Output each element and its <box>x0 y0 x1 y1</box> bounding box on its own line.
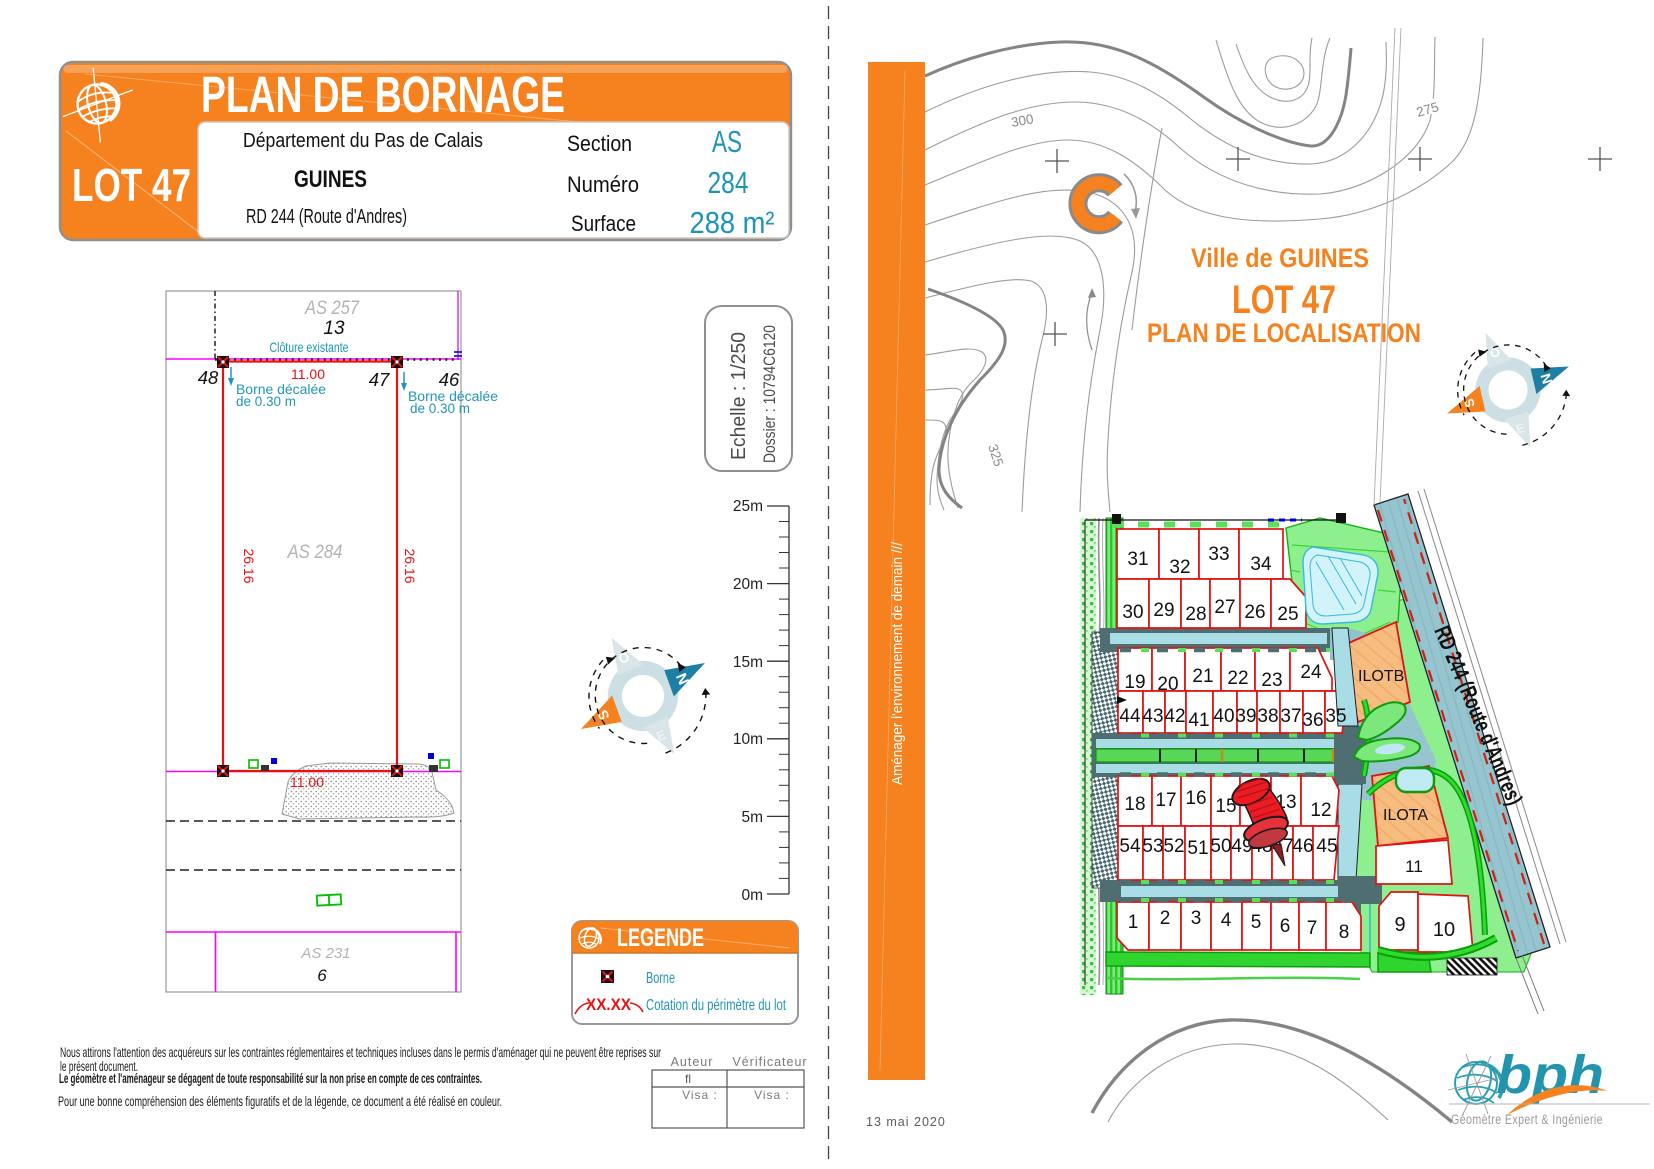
svg-text:54: 54 <box>1119 836 1141 857</box>
svg-text:16: 16 <box>1185 788 1206 809</box>
svg-text:26.16: 26.16 <box>241 548 257 583</box>
svg-text:46: 46 <box>1292 836 1313 857</box>
svg-text:45: 45 <box>1316 836 1337 857</box>
svg-text:Surface: Surface <box>571 211 636 236</box>
svg-text:fl: fl <box>685 1072 691 1086</box>
svg-text:2: 2 <box>1160 908 1171 929</box>
svg-text:46: 46 <box>439 369 460 390</box>
svg-text:3: 3 <box>1191 908 1202 929</box>
svg-text:23: 23 <box>1261 670 1282 691</box>
svg-text:40: 40 <box>1213 706 1234 727</box>
svg-text:24: 24 <box>1300 662 1322 683</box>
svg-text:5: 5 <box>1251 912 1262 933</box>
svg-text:9: 9 <box>1394 914 1405 936</box>
svg-text:21: 21 <box>1192 666 1213 687</box>
svg-text:26: 26 <box>1244 602 1265 623</box>
svg-text:Echelle : 1/250: Echelle : 1/250 <box>728 332 750 460</box>
svg-text:5m: 5m <box>741 809 763 826</box>
svg-text:15m: 15m <box>733 654 763 671</box>
svg-text:ILOTA: ILOTA <box>1383 807 1428 824</box>
svg-text:20m: 20m <box>733 576 763 593</box>
svg-text:52: 52 <box>1163 836 1184 857</box>
svg-text:PLAN DE BORNAGE: PLAN DE BORNAGE <box>201 66 565 123</box>
svg-text:10m: 10m <box>733 731 763 748</box>
svg-text:Ville de GUINES: Ville de GUINES <box>1191 243 1369 273</box>
svg-text:25: 25 <box>1277 604 1298 625</box>
svg-text:Géomètre Expert & Ingénierie: Géomètre Expert & Ingénierie <box>1451 1112 1603 1127</box>
svg-text:37: 37 <box>1280 706 1301 727</box>
svg-text:de 0.30 m: de 0.30 m <box>236 394 296 409</box>
svg-text:284: 284 <box>708 165 749 200</box>
svg-text:27: 27 <box>1214 597 1235 618</box>
svg-text:39: 39 <box>1235 706 1256 727</box>
svg-text:Section: Section <box>567 131 632 156</box>
svg-text:PLAN DE LOCALISATION: PLAN DE LOCALISATION <box>1147 318 1421 348</box>
svg-text:LOT 47: LOT 47 <box>1232 278 1336 322</box>
svg-text:AS 284: AS 284 <box>287 542 343 563</box>
svg-text:20: 20 <box>1157 674 1178 695</box>
svg-text:32: 32 <box>1169 557 1190 578</box>
svg-text:43: 43 <box>1142 706 1163 727</box>
svg-text:11.00: 11.00 <box>290 774 324 790</box>
svg-text:18: 18 <box>1124 794 1145 815</box>
svg-text:Numéro: Numéro <box>567 172 639 197</box>
svg-text:31: 31 <box>1127 549 1148 570</box>
svg-text:47: 47 <box>369 369 390 390</box>
svg-text:AS 231: AS 231 <box>300 945 350 962</box>
svg-text:50: 50 <box>1210 836 1231 857</box>
svg-text:28: 28 <box>1185 604 1206 625</box>
svg-text:6: 6 <box>1280 916 1291 937</box>
svg-text:Auteur: Auteur <box>671 1055 714 1069</box>
svg-text:44: 44 <box>1119 706 1141 727</box>
svg-text:48: 48 <box>198 367 219 388</box>
svg-text:8: 8 <box>1339 922 1350 943</box>
svg-text:Vérificateur: Vérificateur <box>732 1055 807 1069</box>
svg-text:Dossier : 10794C6120: Dossier : 10794C6120 <box>761 325 779 463</box>
svg-text:Visa :: Visa : <box>754 1088 790 1102</box>
svg-text:13 mai 2020: 13 mai 2020 <box>866 1115 946 1129</box>
svg-text:7: 7 <box>1307 918 1318 939</box>
svg-text:Visa :: Visa : <box>682 1088 718 1102</box>
svg-text:41: 41 <box>1188 710 1209 731</box>
svg-text:13: 13 <box>323 318 345 339</box>
svg-text:34: 34 <box>1250 554 1272 575</box>
svg-text:51: 51 <box>1187 838 1208 859</box>
svg-text:38: 38 <box>1257 706 1278 727</box>
svg-text:10: 10 <box>1433 919 1455 941</box>
svg-text:11.00: 11.00 <box>291 366 325 382</box>
svg-text:Département du Pas de Calais: Département du Pas de Calais <box>243 130 483 152</box>
svg-text:35: 35 <box>1325 706 1346 727</box>
svg-text:AS: AS <box>712 124 742 159</box>
svg-text:GUINES: GUINES <box>294 166 367 193</box>
svg-text:22: 22 <box>1227 668 1248 689</box>
svg-text:4: 4 <box>1221 910 1232 931</box>
svg-text:17: 17 <box>1155 790 1176 811</box>
svg-text:Aménager l'environnement de de: Aménager l'environnement de demain /// <box>890 541 906 785</box>
svg-text:Le géomètre et l'aménageur se: Le géomètre et l'aménageur se dégagent d… <box>59 1070 482 1086</box>
svg-text:30: 30 <box>1122 602 1143 623</box>
svg-text:0m: 0m <box>741 887 763 904</box>
svg-text:LEGENDE: LEGENDE <box>617 924 704 952</box>
svg-text:Cotation du périmètre du lot: Cotation du périmètre du lot <box>646 997 786 1014</box>
svg-text:11: 11 <box>1405 857 1423 876</box>
svg-text:29: 29 <box>1153 600 1174 621</box>
svg-text:26.16: 26.16 <box>402 548 418 583</box>
svg-text:1: 1 <box>1128 912 1139 933</box>
svg-text:53: 53 <box>1142 836 1163 857</box>
svg-text:33: 33 <box>1208 544 1229 565</box>
svg-text:36: 36 <box>1302 710 1323 731</box>
svg-text:6: 6 <box>317 966 327 985</box>
svg-text:Nous attirons l'attention des: Nous attirons l'attention des acquéreurs… <box>60 1044 661 1060</box>
svg-text:42: 42 <box>1164 706 1185 727</box>
svg-text:Clôture existante: Clôture existante <box>270 339 349 355</box>
svg-text:Borne: Borne <box>646 970 675 987</box>
svg-text:XX.XX: XX.XX <box>586 996 631 1014</box>
svg-text:Pour une bonne compréhension d: Pour une bonne compréhension des élément… <box>58 1093 502 1109</box>
svg-text:RD 244 (Route d'Andres): RD 244 (Route d'Andres) <box>246 206 407 228</box>
svg-text:LOT 47: LOT 47 <box>72 159 191 211</box>
svg-text:de 0.30 m: de 0.30 m <box>410 401 470 416</box>
svg-text:ILOTB: ILOTB <box>1358 668 1404 685</box>
svg-text:19: 19 <box>1124 672 1145 693</box>
svg-text:AS 257: AS 257 <box>304 298 360 319</box>
svg-text:12: 12 <box>1310 800 1331 821</box>
svg-text:288 m²: 288 m² <box>690 205 775 240</box>
svg-text:25m: 25m <box>733 498 763 515</box>
